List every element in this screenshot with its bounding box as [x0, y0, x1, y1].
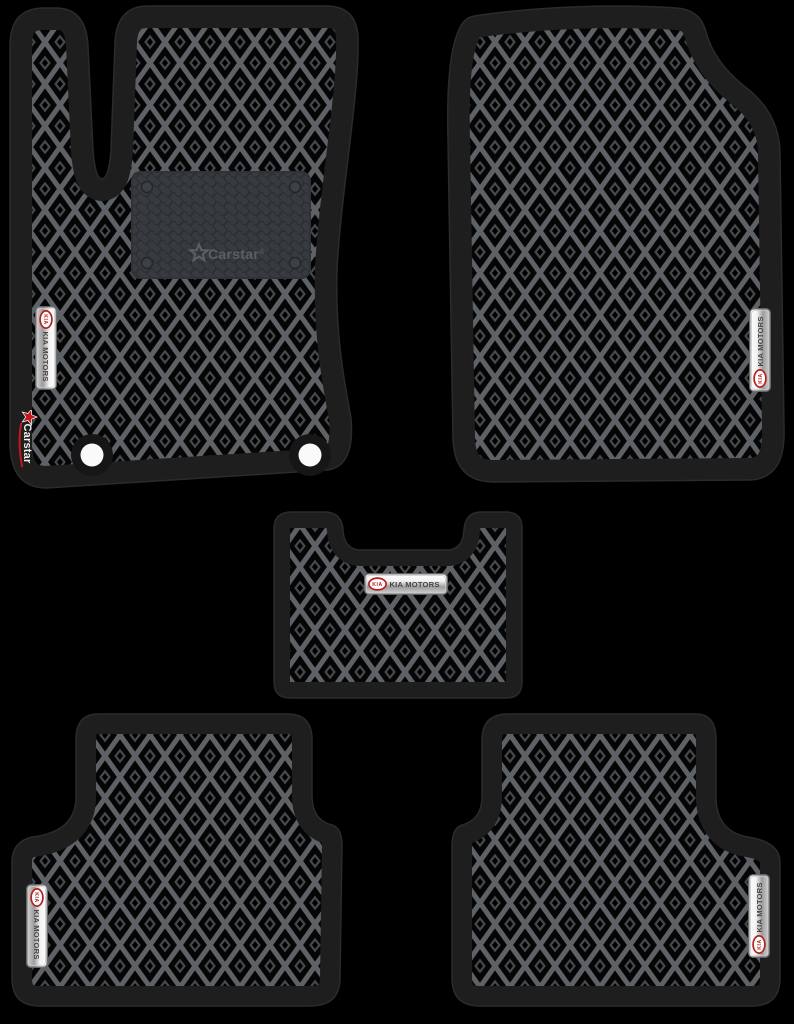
kia-motors-badge [749, 875, 769, 957]
car-mat-set-photo: KIA KIA MOTORS Carstar [0, 0, 794, 1024]
fixing-hole [81, 444, 104, 467]
front-passenger-mat [448, 6, 784, 482]
heel-pad-logo-text: Carstar® [208, 246, 265, 262]
kia-motors-badge [365, 574, 447, 594]
kia-motors-badge [36, 307, 56, 389]
heel-pad: Carstar® [132, 172, 310, 278]
heel-pad-rivet [142, 182, 153, 193]
heel-pad-rivet [290, 258, 301, 269]
kia-motors-badge [750, 309, 770, 391]
fixing-hole [299, 444, 322, 467]
mat-set-canvas: KIA KIA MOTORS Carstar [0, 0, 794, 1024]
heel-pad-rivet [142, 258, 153, 269]
kia-motors-badge [27, 885, 47, 967]
driver-front-mat: Carstar® [10, 6, 358, 488]
heel-pad-rivet [290, 182, 301, 193]
